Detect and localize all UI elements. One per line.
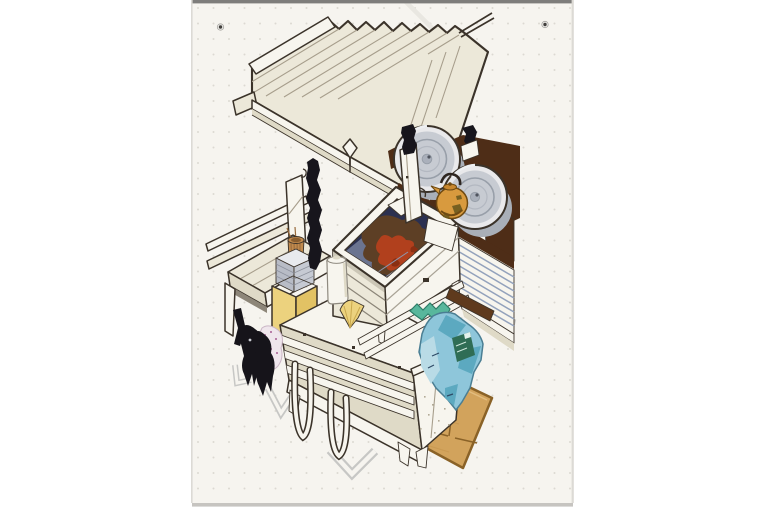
counter-leg	[225, 283, 235, 336]
grill-vent-handle	[423, 278, 429, 282]
punch-hole-right	[542, 21, 548, 27]
napkin-stack	[276, 249, 314, 292]
paper-left-edge	[191, 0, 193, 503]
bottle-cap	[333, 256, 341, 260]
paper-bottom-shadow	[192, 503, 573, 507]
kettle-body	[437, 188, 468, 219]
post-bolt	[406, 176, 408, 178]
sketch-canvas	[0, 0, 764, 512]
kettle-knob	[448, 182, 452, 186]
basket-opening	[291, 238, 301, 242]
paper-right-edge	[572, 0, 574, 503]
punch-hole-left	[217, 24, 223, 30]
punch-hole-center	[219, 25, 222, 28]
paper-top-edge	[192, 0, 573, 3]
keg-cap-dot	[475, 193, 478, 196]
keg-cap	[422, 154, 432, 164]
punch-hole-center	[543, 23, 546, 26]
scanned-sketch-page	[0, 0, 764, 512]
keg-cap-dot	[427, 155, 430, 158]
squeeze-bottle	[327, 256, 348, 305]
glove-highlight	[249, 339, 252, 342]
keg-cap	[470, 192, 479, 201]
